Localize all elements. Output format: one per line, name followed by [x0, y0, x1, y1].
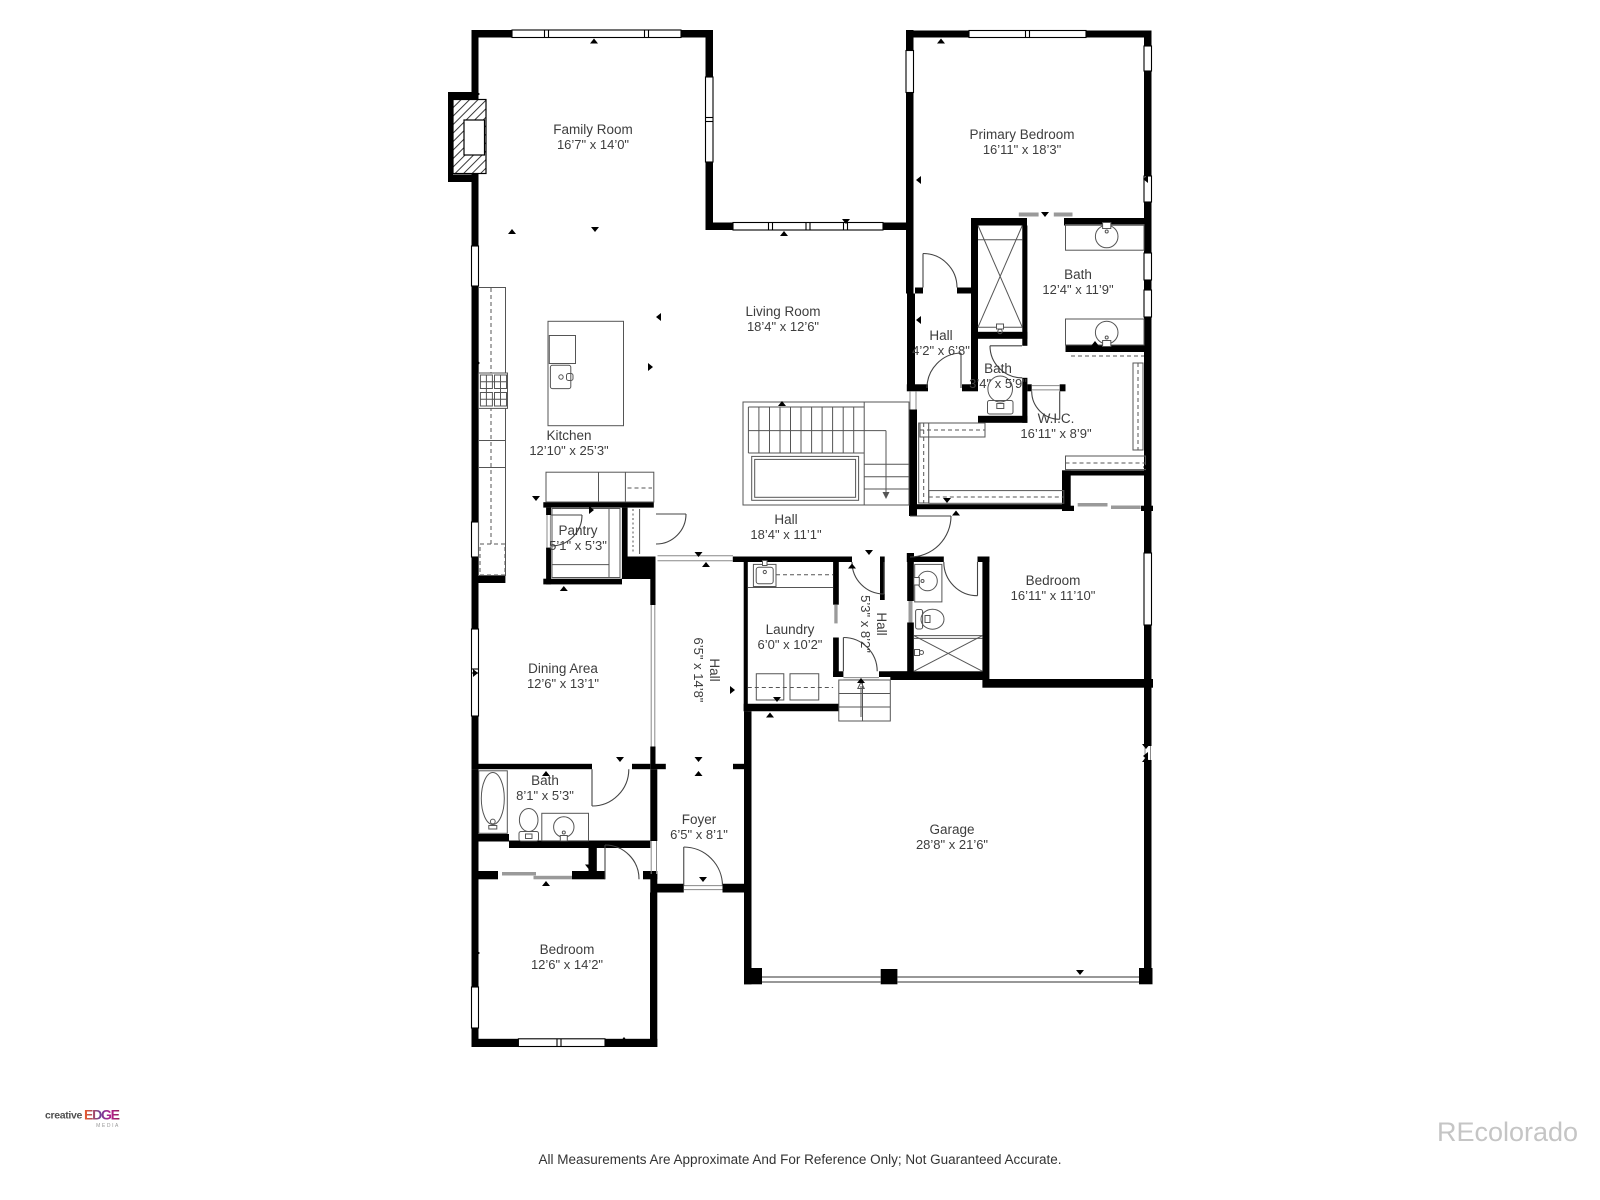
svg-text:Garage: Garage: [929, 822, 974, 837]
svg-text:12’6" x 14’2": 12’6" x 14’2": [531, 957, 603, 972]
svg-text:Laundry: Laundry: [766, 622, 815, 637]
svg-text:Bath: Bath: [984, 361, 1012, 376]
svg-text:Hall: Hall: [874, 612, 889, 635]
svg-text:8’1" x 5’3": 8’1" x 5’3": [516, 788, 574, 803]
svg-text:5’1" x 5’3": 5’1" x 5’3": [549, 538, 607, 553]
svg-text:W.I.C.: W.I.C.: [1038, 411, 1075, 426]
svg-text:Dining Area: Dining Area: [528, 661, 598, 676]
svg-text:Foyer: Foyer: [682, 812, 717, 827]
svg-text:Hall: Hall: [929, 328, 952, 343]
svg-text:4’2" x 6’8": 4’2" x 6’8": [912, 343, 970, 358]
svg-text:Living Room: Living Room: [745, 304, 820, 319]
svg-text:28’8" x 21’6": 28’8" x 21’6": [916, 837, 988, 852]
svg-text:12’10" x 25’3": 12’10" x 25’3": [529, 443, 609, 458]
svg-text:16’7" x 14’0": 16’7" x 14’0": [557, 137, 629, 152]
svg-text:6’5" x 14’8": 6’5" x 14’8": [691, 638, 706, 703]
svg-text:Bedroom: Bedroom: [1026, 573, 1081, 588]
svg-text:16’11" x 11’10": 16’11" x 11’10": [1011, 588, 1096, 603]
svg-text:Bath: Bath: [531, 773, 559, 788]
svg-text:Hall: Hall: [707, 658, 722, 681]
svg-text:EDGE: EDGE: [84, 1107, 120, 1123]
svg-text:MEDIA: MEDIA: [96, 1123, 120, 1129]
svg-text:Family Room: Family Room: [553, 122, 633, 137]
svg-text:12’6" x 13’1": 12’6" x 13’1": [527, 676, 599, 691]
svg-text:Bath: Bath: [1064, 267, 1092, 282]
svg-text:16’11" x 18’3": 16’11" x 18’3": [983, 142, 1062, 157]
svg-text:6’5" x 8’1": 6’5" x 8’1": [670, 827, 728, 842]
svg-text:Kitchen: Kitchen: [546, 428, 591, 443]
svg-text:Pantry: Pantry: [558, 523, 597, 538]
svg-text:6’0" x 10’2": 6’0" x 10’2": [758, 637, 823, 652]
svg-text:18’4" x 12’6": 18’4" x 12’6": [747, 319, 819, 334]
svg-text:creative: creative: [45, 1110, 82, 1122]
svg-text:5’3" x 8’2": 5’3" x 8’2": [858, 595, 873, 653]
svg-text:18’4" x 11’1": 18’4" x 11’1": [750, 527, 822, 542]
svg-text:All Measurements Are Approxima: All Measurements Are Approximate And For…: [538, 1152, 1061, 1167]
svg-text:Primary Bedroom: Primary Bedroom: [969, 127, 1074, 142]
svg-text:Hall: Hall: [774, 512, 797, 527]
svg-text:Bedroom: Bedroom: [540, 942, 595, 957]
svg-text:12’4" x 11’9": 12’4" x 11’9": [1042, 282, 1114, 297]
svg-text:3’4" x 5’9": 3’4" x 5’9": [969, 376, 1027, 391]
svg-text:16’11" x 8’9": 16’11" x 8’9": [1020, 426, 1092, 441]
svg-text:REcolorado: REcolorado: [1437, 1117, 1578, 1147]
